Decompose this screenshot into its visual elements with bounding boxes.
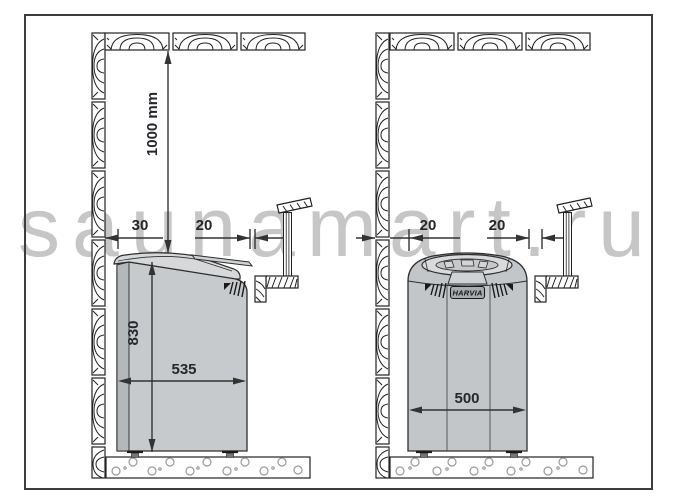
left-heater <box>114 253 252 458</box>
dome-front-panel <box>448 272 487 284</box>
left-ceiling <box>105 33 305 50</box>
ceiling-clearance-label: 1000 mm <box>144 92 161 156</box>
left-heater-body <box>117 262 247 451</box>
brand-label: HARVIA <box>453 289 483 298</box>
wall-clearance-label: 30 <box>132 217 149 234</box>
left-heater-side-panel <box>117 262 129 451</box>
height-label: 830 <box>125 320 142 345</box>
rail-clearance-label: 20 <box>489 217 506 234</box>
installation-diagram: saunamart.ru <box>0 0 685 502</box>
brand-badge: HARVIA <box>451 287 485 299</box>
right-floor <box>390 457 593 478</box>
left-floor <box>106 457 310 478</box>
width-label: 535 <box>171 361 196 378</box>
watermark-text: saunamart.ru <box>18 180 657 274</box>
rail-clearance-label: 20 <box>196 217 213 234</box>
diagram-canvas: saunamart.ru <box>0 0 685 502</box>
right-ceiling <box>390 33 590 50</box>
right-heater: HARVIA <box>408 253 527 457</box>
width-label: 500 <box>454 390 479 407</box>
wall-clearance-label: 20 <box>420 217 437 234</box>
